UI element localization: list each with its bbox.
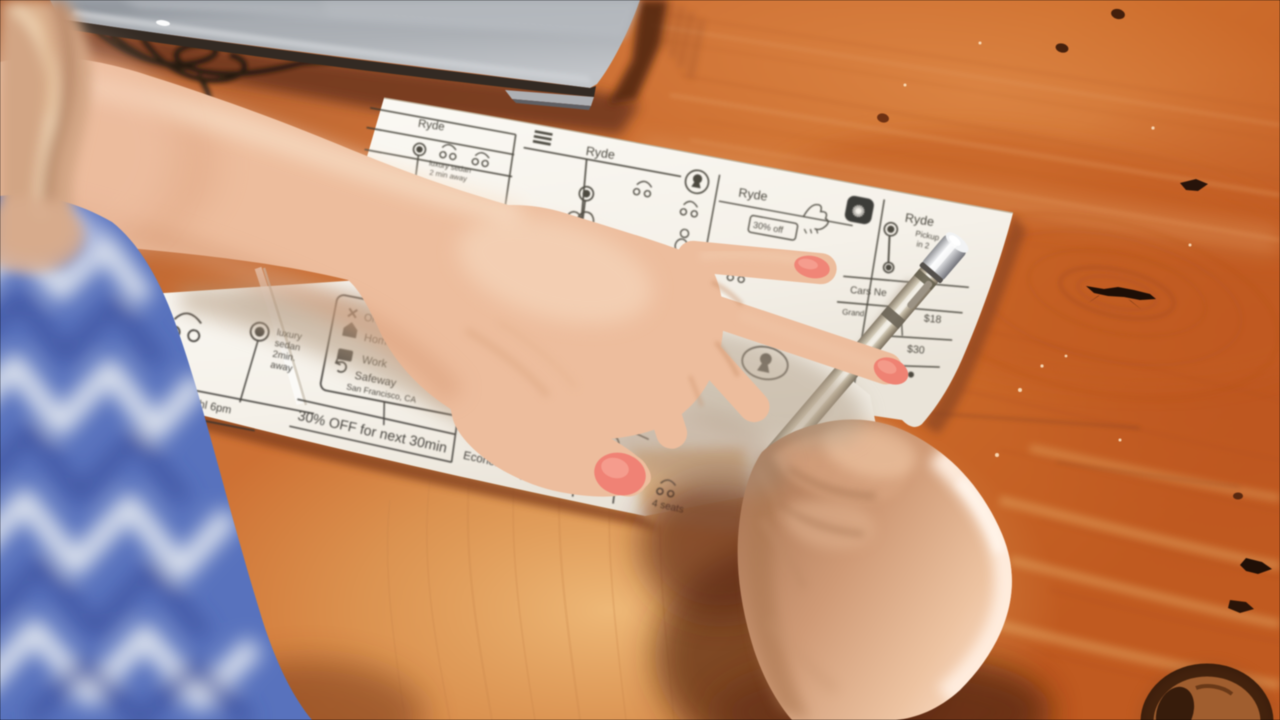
svg-text:$30: $30 [907, 343, 926, 356]
svg-text:$18: $18 [923, 313, 942, 326]
